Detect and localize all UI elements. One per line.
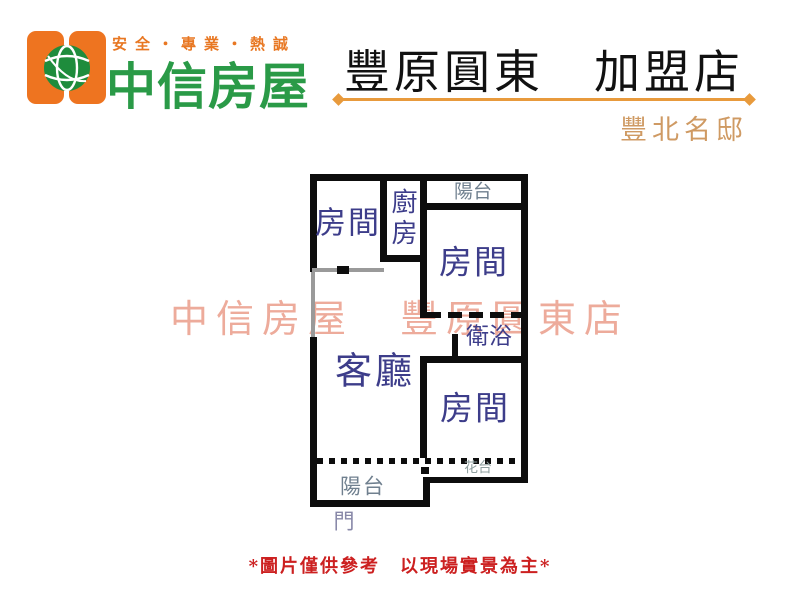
wall-outer-bottom	[310, 500, 430, 507]
wall-bedroom2-bottom-dashed	[427, 312, 521, 318]
room-label-bedroom-3: 房間	[440, 392, 510, 425]
room-label-balcony-top: 陽台	[454, 183, 492, 202]
room-label-bedroom-1: 房間	[315, 209, 381, 240]
wall-balcony-top-bottom	[420, 203, 528, 210]
wall-balcony-right	[423, 477, 430, 507]
floor-plan: 房間 廚房 陽台 房間 衛浴 客廳 房間 花台 陽台 門	[0, 0, 800, 600]
room-label-kitchen: 廚房	[389, 188, 415, 250]
room-label-bathroom: 衛浴	[466, 326, 512, 349]
wall-flowerbed-bottom	[423, 477, 528, 483]
wall-bedroom3-top	[420, 356, 528, 363]
wall-outer-left-window	[311, 272, 315, 337]
wall-kitchen-left	[380, 174, 387, 262]
room-label-door: 門	[334, 512, 355, 533]
room-label-flower-bed: 花台	[464, 461, 492, 475]
room-label-balcony-bottom: 陽台	[340, 477, 386, 498]
room-label-bedroom-2: 房間	[439, 246, 509, 279]
wall-outer-top	[310, 174, 528, 181]
wall-outer-right	[521, 174, 528, 483]
wall-bedroom1-door-block	[337, 266, 349, 274]
room-label-living-room: 客廳	[335, 353, 415, 390]
wall-center-divider-lower	[420, 356, 427, 458]
wall-outer-left-lower	[310, 337, 317, 507]
wall-center-divider-upper	[420, 174, 427, 318]
wall-divider-dot	[421, 467, 429, 474]
